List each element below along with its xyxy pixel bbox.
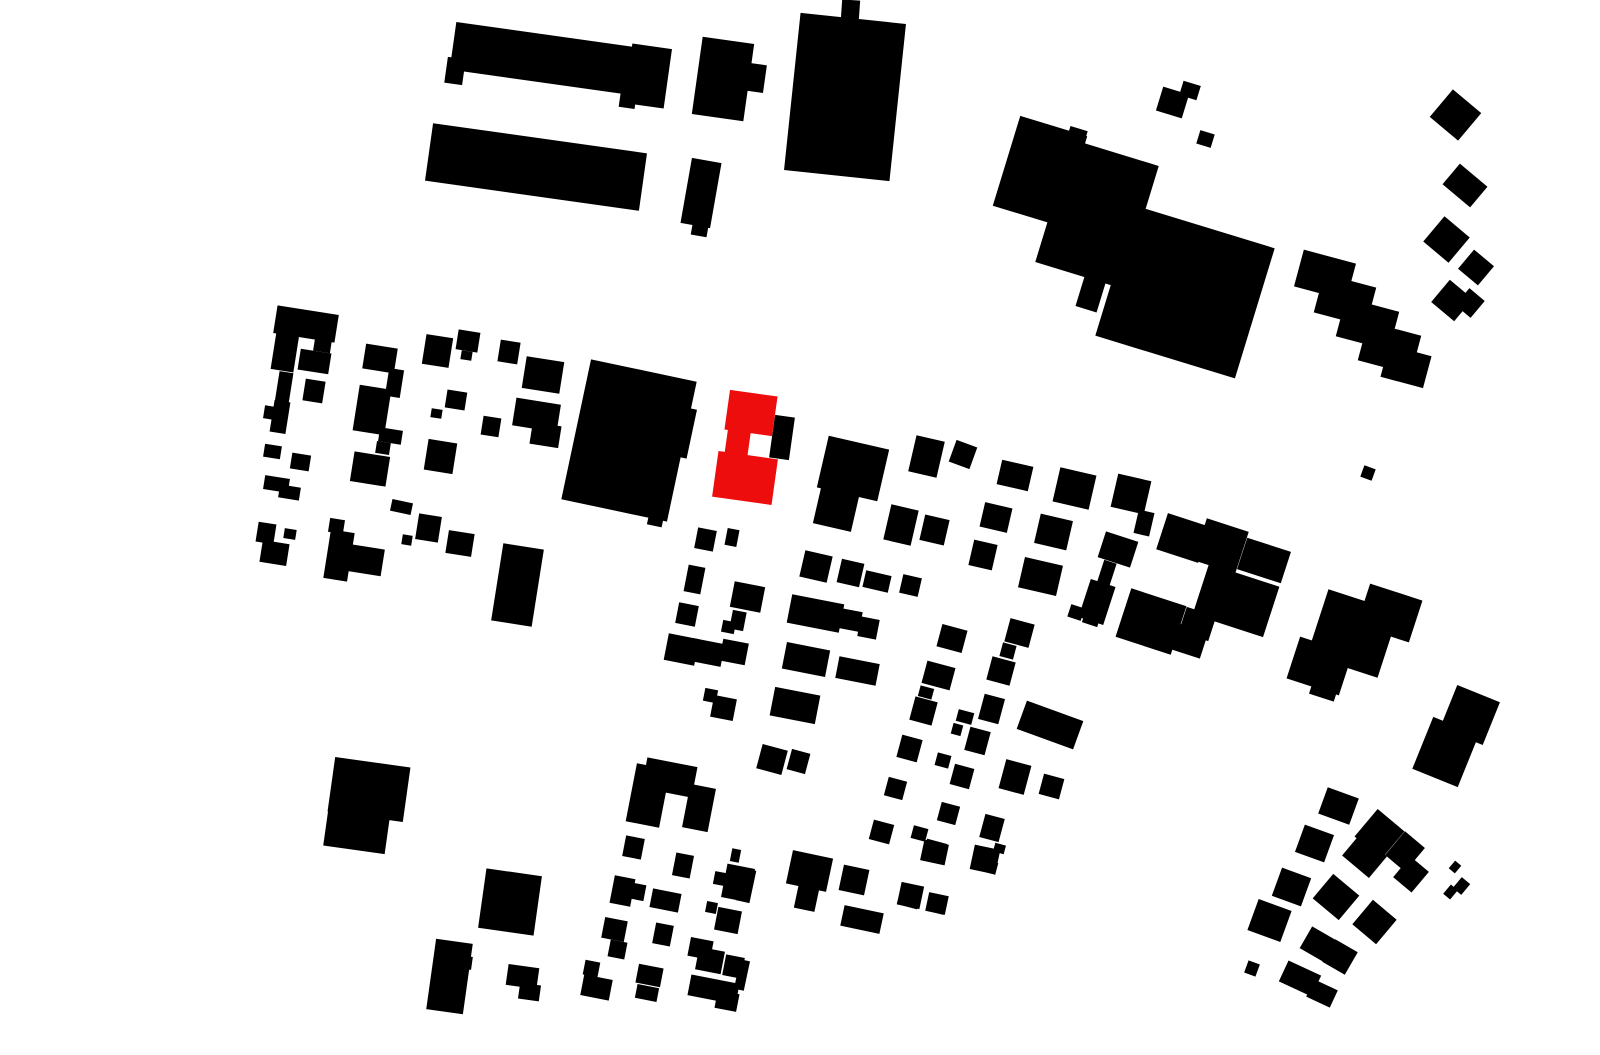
building-footprint xyxy=(1039,774,1065,800)
building-footprint xyxy=(908,435,945,478)
building-footprint xyxy=(478,868,542,935)
building-footprint xyxy=(622,835,645,859)
building-footprint xyxy=(968,540,997,571)
building-footprint xyxy=(970,845,1001,875)
building-footprint xyxy=(1018,557,1063,596)
building-footprint xyxy=(730,848,741,862)
building-footprint xyxy=(518,983,541,1002)
building-footprint xyxy=(918,685,934,699)
building-footprint xyxy=(1111,474,1152,515)
building-footprint xyxy=(445,390,468,411)
building-footprint xyxy=(649,888,681,912)
building-footprint xyxy=(1053,467,1097,509)
building-footprint xyxy=(608,940,628,960)
building-footprint xyxy=(869,820,894,845)
building-footprint xyxy=(979,814,1005,842)
building-footprint xyxy=(390,499,413,515)
building-footprint xyxy=(1313,874,1360,920)
building-footprint xyxy=(323,802,391,854)
building-footprint xyxy=(1017,701,1084,750)
figure-ground-map xyxy=(0,0,1600,1055)
building-footprint xyxy=(925,892,949,915)
building-footprint xyxy=(684,565,706,595)
building-footprint xyxy=(787,594,845,633)
building-footprint xyxy=(813,483,860,532)
building-footprint xyxy=(675,602,699,626)
building-footprint xyxy=(283,528,296,540)
building-footprint xyxy=(721,620,736,634)
building-footprint xyxy=(680,158,721,228)
building-footprint xyxy=(695,947,725,975)
building-footprint xyxy=(980,502,1013,533)
building-footprint xyxy=(522,356,565,394)
building-footprint xyxy=(263,405,275,419)
building-footprint xyxy=(290,453,311,472)
building-footprint xyxy=(784,13,906,181)
building-footprint xyxy=(730,581,765,612)
building-footprint xyxy=(497,340,520,365)
building-footprint xyxy=(949,440,978,469)
building-footprint xyxy=(425,123,647,210)
building-footprint xyxy=(782,642,830,677)
building-footprint xyxy=(259,540,289,566)
building-footprint xyxy=(456,329,481,352)
building-footprint xyxy=(619,87,638,109)
building-footprint xyxy=(1430,89,1481,140)
building-footprint xyxy=(999,642,1016,659)
building-footprint xyxy=(997,460,1034,492)
building-footprint xyxy=(857,616,879,639)
building-footprint xyxy=(799,550,832,583)
building-footprint xyxy=(883,504,918,545)
building-footprint xyxy=(950,764,975,789)
building-footprint xyxy=(862,570,891,592)
building-footprint xyxy=(1247,899,1291,942)
building-footprint xyxy=(601,917,628,942)
building-footprint xyxy=(770,687,821,724)
building-footprint xyxy=(1134,510,1155,537)
building-footprint xyxy=(964,727,990,756)
building-footprint xyxy=(635,984,659,1002)
building-footprint xyxy=(786,850,833,892)
building-footprint xyxy=(1360,465,1375,480)
building-footprint xyxy=(899,574,922,597)
building-footprint xyxy=(1443,164,1488,208)
building-footprint xyxy=(986,656,1015,685)
building-footprint xyxy=(278,484,301,500)
building-footprint xyxy=(1352,900,1396,944)
building-footprint xyxy=(1380,345,1431,388)
building-footprint xyxy=(610,875,636,906)
highlighted-building-footprint xyxy=(712,451,778,505)
building-footprint xyxy=(999,759,1032,795)
building-footprint xyxy=(529,422,561,448)
building-footprint xyxy=(1076,274,1107,313)
building-footprint xyxy=(837,559,865,588)
building-footprint xyxy=(835,656,879,685)
building-footprint xyxy=(911,825,929,841)
building-footprint xyxy=(1272,868,1311,907)
building-footprint xyxy=(919,515,949,546)
building-footprint xyxy=(896,735,922,763)
building-footprint xyxy=(710,695,737,721)
building-footprint xyxy=(956,709,975,725)
building-footprint xyxy=(445,530,474,557)
building-footprint xyxy=(884,777,907,800)
building-footprint xyxy=(714,907,742,934)
building-footprint xyxy=(460,350,472,361)
building-footprint xyxy=(1034,514,1073,551)
building-footprint xyxy=(375,441,391,455)
building-footprint xyxy=(1244,960,1260,976)
building-footprint xyxy=(922,661,956,691)
building-footprint xyxy=(978,694,1005,725)
building-footprint xyxy=(491,543,544,626)
building-footprint xyxy=(302,379,325,404)
building-footprint xyxy=(1318,787,1359,825)
building-footprint xyxy=(1449,861,1462,874)
building-footprint xyxy=(422,334,453,368)
building-footprint xyxy=(672,852,694,878)
building-footprint xyxy=(263,444,282,459)
building-footprint xyxy=(385,368,404,398)
building-footprint xyxy=(840,905,883,934)
building-footprint xyxy=(691,219,710,238)
building-footprint xyxy=(1295,825,1334,863)
building-footprint xyxy=(444,57,465,85)
building-footprint xyxy=(313,338,332,353)
building-footprint xyxy=(937,802,960,825)
building-footprint xyxy=(951,723,964,736)
building-footprint xyxy=(275,371,294,405)
building-footprint xyxy=(840,0,860,35)
building-footprint xyxy=(449,993,463,1007)
building-footprint xyxy=(794,885,819,912)
building-footprint xyxy=(635,964,663,987)
building-footprint xyxy=(756,744,788,775)
building-footprint xyxy=(724,528,739,547)
building-footprint xyxy=(909,696,937,725)
building-footprint xyxy=(481,416,502,438)
building-footprint xyxy=(350,451,390,486)
building-footprint xyxy=(935,752,952,768)
building-footprint xyxy=(415,513,442,542)
building-footprint xyxy=(705,901,718,914)
building-footprint xyxy=(692,37,754,121)
building-footprint xyxy=(426,939,473,1014)
building-footprint xyxy=(430,408,442,419)
building-footprint xyxy=(401,534,412,545)
building-footprint xyxy=(1423,216,1469,262)
building-footprint xyxy=(1458,250,1494,286)
building-footprint xyxy=(1004,618,1034,648)
building-footprint xyxy=(787,749,811,774)
building-footprint xyxy=(1196,130,1214,148)
building-footprint xyxy=(694,527,717,551)
building-footprint xyxy=(839,865,870,896)
building-footprint xyxy=(424,439,457,474)
building-footprint xyxy=(719,639,749,666)
site-plan-canvas xyxy=(0,0,1600,1055)
building-footprint xyxy=(580,974,612,1000)
building-footprint xyxy=(897,882,924,909)
building-footprint xyxy=(458,955,473,970)
building-footprint xyxy=(652,922,674,946)
building-footprint xyxy=(936,624,967,653)
